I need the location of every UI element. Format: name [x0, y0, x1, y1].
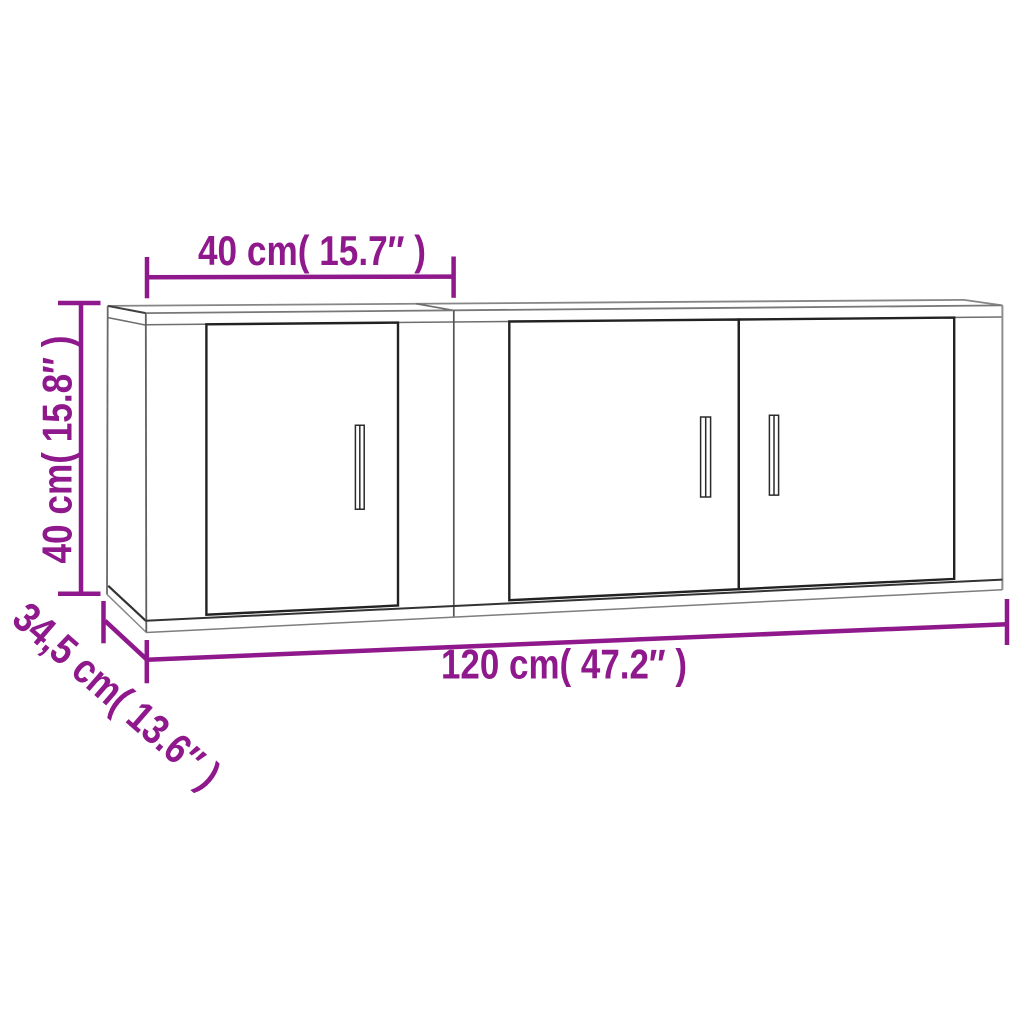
svg-text:40 cm( 15.8″ ): 40 cm( 15.8″ ): [34, 336, 81, 564]
svg-text:40 cm( 15.7″ ): 40 cm( 15.7″ ): [198, 227, 426, 274]
svg-text:120 cm( 47.2″ ): 120 cm( 47.2″ ): [441, 641, 687, 688]
